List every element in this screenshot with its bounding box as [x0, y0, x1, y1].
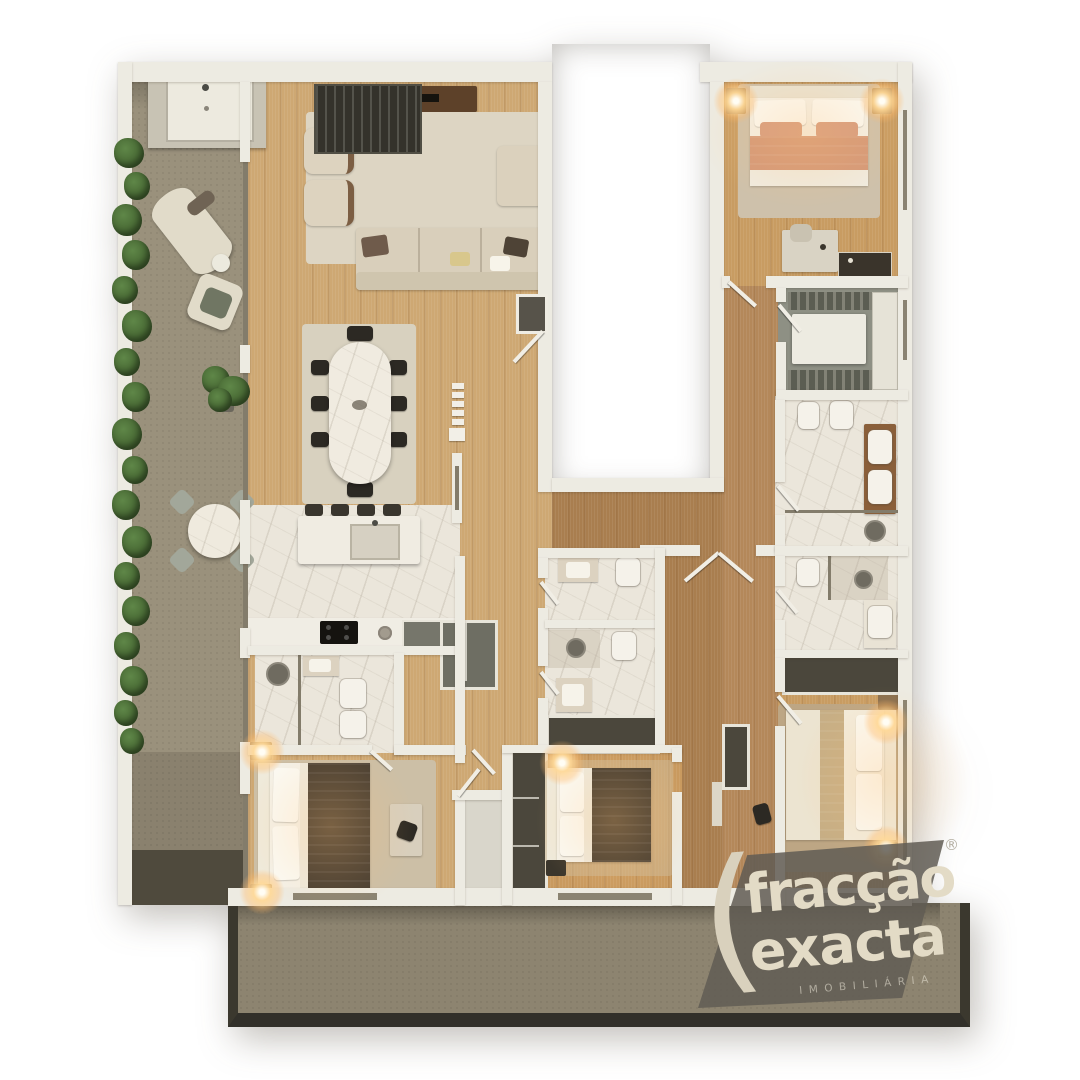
- burner: [344, 625, 349, 630]
- wall-bath3-bottom: [775, 650, 908, 658]
- dining-table: [329, 342, 391, 484]
- wall-pier: [240, 82, 250, 162]
- dining-chair: [347, 326, 373, 341]
- outdoor-faucet: [202, 84, 209, 91]
- lamp-glow: [713, 78, 759, 124]
- wardrobe-divider: [513, 797, 539, 799]
- bar-stool: [331, 504, 349, 516]
- island-faucet: [372, 520, 378, 526]
- dining-chair: [389, 396, 407, 411]
- sofa-pillow: [490, 256, 510, 271]
- terrace-lower-shade: [132, 752, 248, 854]
- wall-bath3-left: [775, 556, 785, 586]
- registered-trademark-symbol: ®: [944, 836, 959, 854]
- hedge-bush: [112, 418, 142, 450]
- hedge-bush: [114, 348, 140, 376]
- shelf-block: [449, 428, 465, 441]
- toilet: [340, 679, 366, 708]
- burner: [326, 625, 331, 630]
- shower-drain: [864, 520, 886, 542]
- wall-cbaths-left: [538, 698, 548, 747]
- wall-void-left: [538, 82, 552, 492]
- hedge-bush: [124, 172, 150, 200]
- drain-dot: [204, 106, 209, 111]
- hedge-bush: [120, 728, 144, 754]
- hedge-bush: [114, 700, 138, 726]
- toilet: [797, 559, 819, 586]
- storage-cabinet: [440, 620, 498, 690]
- island-sink: [350, 524, 400, 560]
- hedge-bush: [122, 596, 150, 626]
- bar-stool: [357, 504, 375, 516]
- dining-chair: [347, 482, 373, 497]
- floorplan-render: ( fracção ´ exacta IMOBILIÁRIA ®: [0, 0, 1080, 1080]
- cabinet-divider: [465, 623, 467, 681]
- hedge-bush: [122, 526, 152, 558]
- hedge-bush: [112, 204, 142, 236]
- shelf-block: [452, 392, 464, 398]
- wardrobe-divider: [513, 845, 539, 847]
- shower-drain: [566, 638, 586, 658]
- wall-mbath-bottom: [775, 546, 908, 556]
- lamp-glow: [863, 699, 909, 745]
- wall-cbaths-top: [538, 548, 665, 558]
- decor-item: [848, 258, 853, 263]
- burner: [326, 635, 331, 640]
- wall-closet-left: [776, 288, 786, 302]
- lamp-glow: [539, 740, 585, 786]
- wall-bed1-right: [455, 793, 465, 905]
- wall-utility-right: [502, 748, 512, 905]
- burner: [344, 635, 349, 640]
- wall-pier: [240, 345, 250, 373]
- sink-basin: [562, 684, 584, 706]
- wall-closet-bottom: [776, 390, 908, 400]
- kitchen-sink: [378, 626, 392, 640]
- lamp-glow: [239, 869, 285, 915]
- hedge-bush: [112, 490, 140, 520]
- dining-chair: [389, 432, 407, 447]
- wall-pier: [240, 500, 250, 564]
- wall-bed1-right: [455, 556, 465, 763]
- wall-mbath-left: [775, 400, 785, 482]
- wall-cbaths-left: [538, 608, 548, 666]
- sink-basin: [868, 606, 892, 638]
- hedge-bush: [120, 666, 148, 696]
- shower-glass: [828, 556, 831, 600]
- chaise-lounge: [497, 146, 543, 206]
- dining-chair: [311, 432, 329, 447]
- wall-bath1-top: [248, 646, 458, 655]
- outdoor-table: [188, 504, 242, 558]
- toilet: [616, 558, 640, 586]
- sofa-backrest: [356, 272, 542, 290]
- hedge-bush: [112, 276, 138, 304]
- wall-bed3-left: [775, 658, 785, 692]
- shower-glass: [785, 510, 898, 513]
- screen-slot: [455, 466, 459, 510]
- sink-basin: [309, 659, 331, 672]
- toilet: [612, 632, 636, 660]
- bar-stool: [305, 504, 323, 516]
- lamp-glow: [859, 78, 905, 124]
- shower-drain: [854, 570, 873, 589]
- bidet: [798, 402, 819, 429]
- hedge-bush: [114, 562, 140, 590]
- dresser: [838, 252, 892, 278]
- bar-stool: [383, 504, 401, 516]
- wall-bed2-right: [672, 748, 682, 762]
- core-void: [552, 44, 710, 492]
- wall-master-bottom: [766, 276, 908, 288]
- sofa-pillow: [503, 236, 530, 258]
- sink-basin: [868, 430, 892, 464]
- closet-shelf: [872, 292, 898, 390]
- shelf-block: [452, 419, 464, 425]
- sofa-pillow: [450, 252, 470, 266]
- vanity-stool: [790, 224, 812, 242]
- bidet: [340, 711, 366, 738]
- window: [903, 300, 907, 360]
- hedge-bush: [114, 632, 140, 660]
- sink-basin: [868, 470, 892, 504]
- wall-top-left-wing: [126, 62, 552, 82]
- decor-item: [820, 244, 826, 250]
- shower-glass: [298, 655, 301, 749]
- cooktop: [320, 621, 358, 644]
- wall-cbaths-right: [655, 548, 665, 747]
- console-table: [712, 782, 722, 826]
- sink-basin: [566, 562, 590, 578]
- sofa-pillow: [361, 234, 390, 257]
- lamp-glow: [239, 729, 285, 775]
- hedge-bush: [114, 138, 144, 168]
- shelf-block: [452, 383, 464, 389]
- potted-plant: [208, 388, 232, 412]
- dining-chair: [311, 360, 329, 375]
- hedge-bush: [122, 456, 148, 484]
- dining-chair: [389, 360, 407, 375]
- logo-watermark: ( fracção ´ exacta IMOBILIÁRIA: [693, 833, 967, 1025]
- wall-bath3-left: [775, 620, 785, 652]
- wall-bath1-right: [394, 653, 404, 755]
- corridor-cabinet: [722, 724, 750, 790]
- media-niche: [516, 294, 548, 334]
- shelf-block: [452, 410, 464, 416]
- hedge-bush: [122, 310, 152, 342]
- shower-drain: [266, 662, 290, 686]
- wall-cbaths-divider: [545, 620, 657, 628]
- hedge-bush: [122, 382, 150, 412]
- closet-island: [792, 314, 866, 364]
- shelf-block: [452, 401, 464, 407]
- side-table: [212, 254, 230, 272]
- armchair: [304, 180, 354, 226]
- toilet: [830, 401, 853, 429]
- dining-chair: [311, 396, 329, 411]
- grill: [314, 84, 422, 154]
- hedge-bush: [122, 240, 150, 270]
- wall-void-bottom: [552, 478, 724, 492]
- wall-cbaths-left: [538, 558, 548, 578]
- table-centerpiece: [352, 400, 367, 410]
